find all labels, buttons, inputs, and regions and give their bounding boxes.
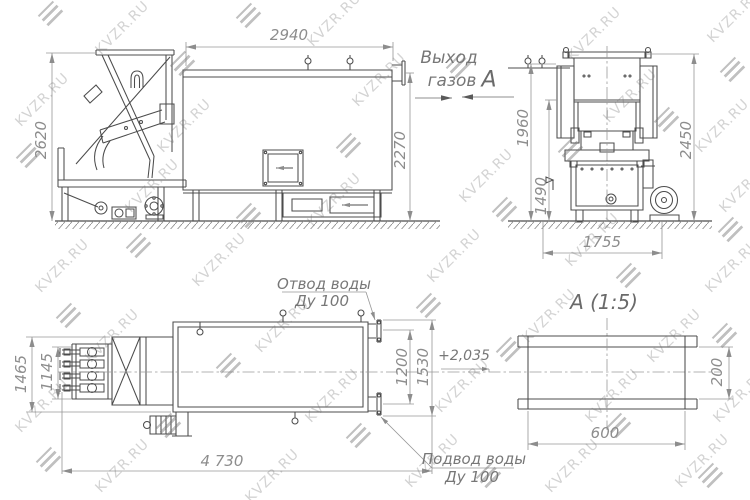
water-inlet-label-line2: Ду 100 (445, 468, 499, 486)
dim-side-outlet-height: 2270 (391, 131, 409, 169)
dim-plan-length: 4 730 (201, 452, 244, 470)
gas-outlet-label-line1: Выход (420, 48, 477, 68)
gas-outlet-label-line2: газов (428, 71, 477, 91)
dim-front-height-grate: 1490 (532, 177, 550, 215)
dim-plan-width-grate: 1145 (38, 353, 56, 391)
elevation-mark: +2,035 (438, 348, 490, 364)
dim-section-width: 600 (591, 424, 620, 442)
water-outlet-label-line1: Отвод воды (277, 275, 371, 293)
dim-plan-width-total: 1465 (12, 355, 30, 393)
view-a-letter: А (481, 68, 496, 93)
water-inlet-label-line1: Подвод воды (422, 450, 526, 468)
dim-section-height: 200 (708, 358, 726, 387)
dim-front-width: 1755 (583, 233, 621, 251)
water-outlet-label-line2: Ду 100 (295, 292, 349, 310)
dim-side-height: 2620 (32, 121, 50, 159)
dim-front-height-inner: 1960 (514, 109, 532, 147)
dim-plan-nozzle-span: 1200 (393, 348, 411, 386)
drawing-sheet: KVZR.RUKVZR.RUKVZR.RUKVZR.RUKVZR.RUKVZR.… (0, 0, 750, 500)
dim-side-width: 2940 (270, 26, 308, 44)
annotation-layer: 2940 2620 2270 Выход газов А 1960 2450 1… (0, 0, 750, 500)
dim-front-height-total: 2450 (677, 121, 695, 159)
dim-plan-nozzle-outer: 1530 (414, 348, 432, 386)
section-title: А (1:5) (570, 290, 638, 314)
